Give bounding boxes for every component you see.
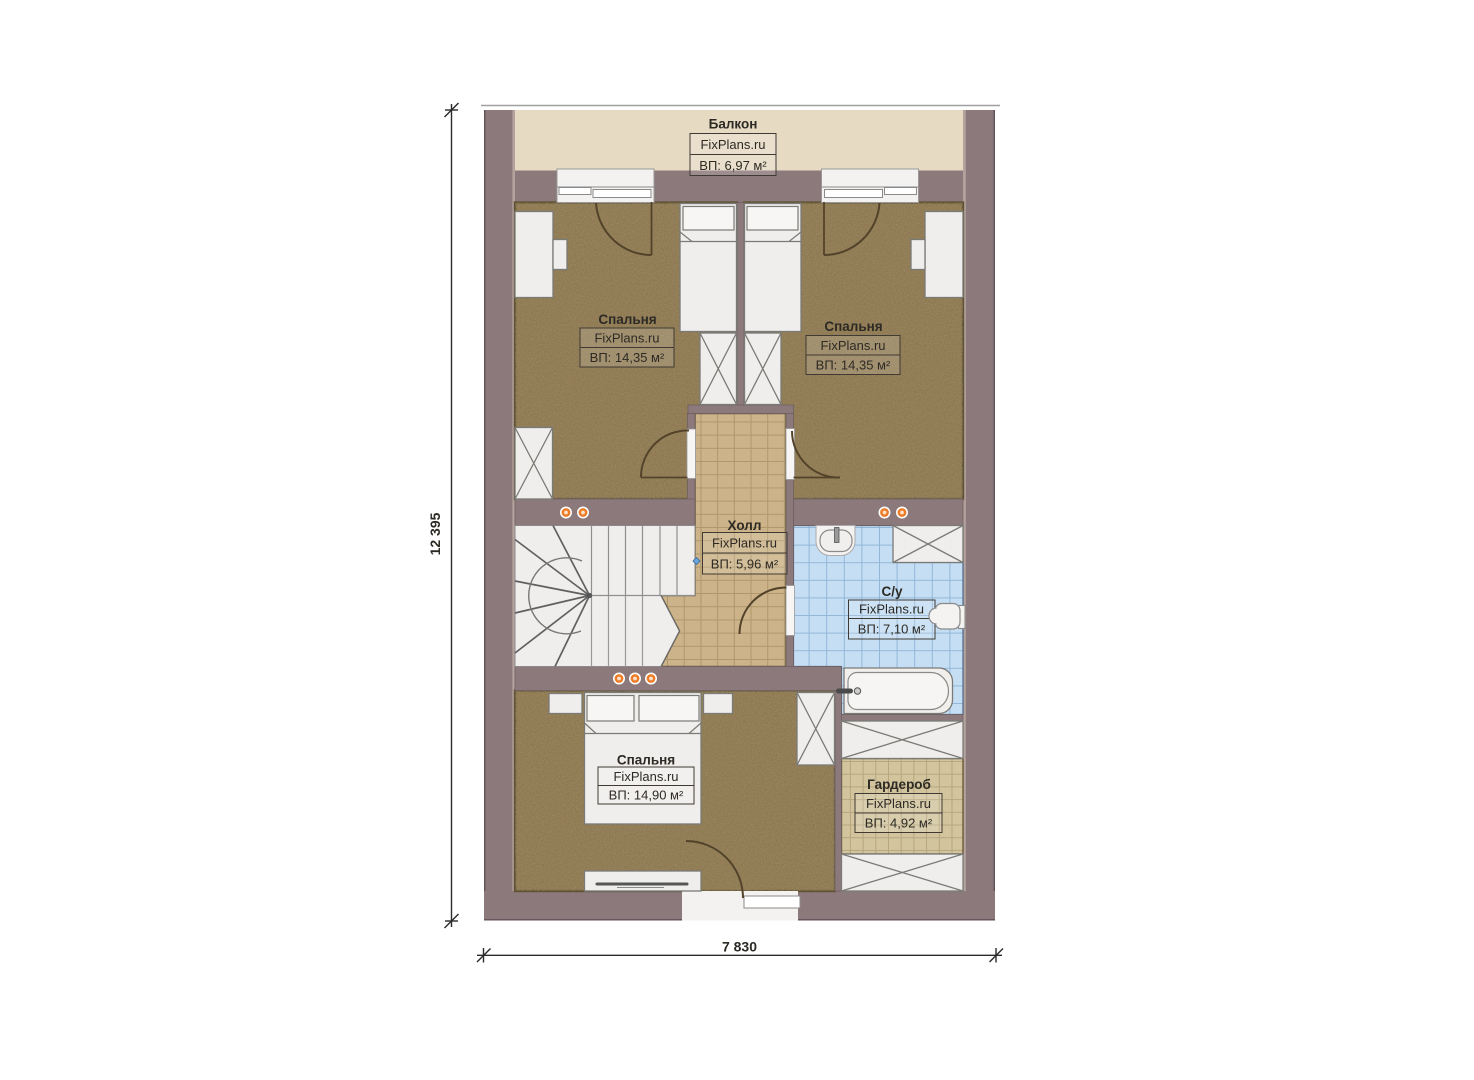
svg-text:ВП: 4,92 м²: ВП: 4,92 м² [865, 816, 933, 831]
svg-text:С/у: С/у [881, 584, 903, 599]
svg-text:Гардероб: Гардероб [867, 777, 931, 792]
svg-text:7 830: 7 830 [722, 939, 757, 955]
svg-text:ВП: 5,96 м²: ВП: 5,96 м² [711, 557, 779, 572]
svg-text:ВП: 14,35 м²: ВП: 14,35 м² [590, 350, 665, 365]
svg-text:FixPlans.ru: FixPlans.ru [613, 769, 678, 784]
svg-text:12 395: 12 395 [427, 512, 443, 555]
svg-text:FixPlans.ru: FixPlans.ru [712, 536, 777, 551]
svg-text:FixPlans.ru: FixPlans.ru [866, 796, 931, 811]
svg-text:FixPlans.ru: FixPlans.ru [594, 331, 659, 346]
svg-text:Спальня: Спальня [598, 312, 656, 327]
svg-text:Спальня: Спальня [617, 753, 675, 768]
svg-text:FixPlans.ru: FixPlans.ru [700, 137, 765, 152]
svg-text:Спальня: Спальня [824, 319, 882, 334]
svg-text:Холл: Холл [728, 518, 762, 533]
svg-text:Балкон: Балкон [709, 117, 758, 132]
svg-text:ВП: 6,97 м²: ВП: 6,97 м² [699, 158, 767, 173]
svg-text:ВП: 14,35 м²: ВП: 14,35 м² [816, 358, 891, 373]
svg-text:ВП: 7,10 м²: ВП: 7,10 м² [858, 622, 926, 637]
svg-text:ВП: 14,90 м²: ВП: 14,90 м² [609, 788, 684, 803]
svg-text:FixPlans.ru: FixPlans.ru [859, 602, 924, 617]
svg-text:FixPlans.ru: FixPlans.ru [820, 338, 885, 353]
